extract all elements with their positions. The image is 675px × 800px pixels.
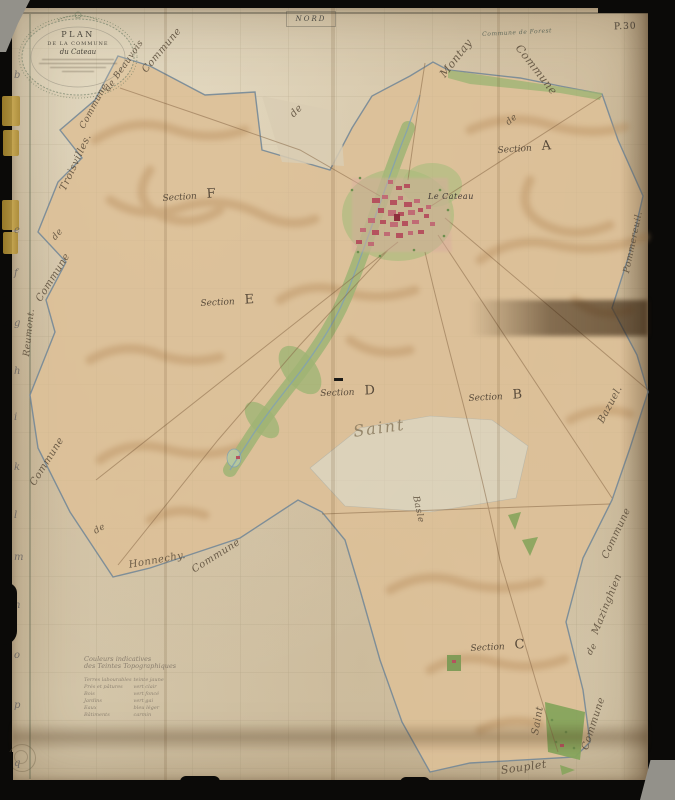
legend-title-2: des Teintes Topographiques (84, 663, 204, 670)
scan-edge-tear (400, 777, 430, 784)
section-letter: D (364, 383, 375, 398)
cartouche-fine-print (39, 63, 117, 64)
legend-row: Eauxbleu léger (84, 704, 166, 711)
legend-row: Boisvert foncé (84, 690, 166, 697)
legend-row: Terres labourablesteinte jaune (84, 676, 166, 683)
grid-row-letter: e (14, 225, 20, 236)
color-legend: Couleurs indicatives des Teintes Topogra… (84, 656, 204, 718)
section-word: Section (470, 642, 505, 654)
legend-row: Bâtimentscarmin (84, 711, 166, 718)
legend-term: Eaux (84, 704, 134, 711)
section-word: Section (162, 192, 197, 204)
tape-repair (2, 96, 20, 126)
map-scan: NORD P.30 PLAN DE LA COMMUNE du Cateau S… (0, 0, 675, 800)
legend-tint: vert clair (134, 683, 166, 690)
legend-row: Jardinsvert gai (84, 697, 166, 704)
north-label: NORD (286, 11, 336, 27)
section-letter: E (244, 292, 254, 307)
section-word: Section (200, 297, 235, 309)
grid-row-letter: h (14, 366, 20, 377)
section-b-label: SectionB (468, 387, 523, 405)
scan-edge-tear (180, 776, 220, 784)
section-word: Section (497, 144, 532, 156)
legend-term: Jardins (84, 697, 134, 704)
legend-tint: bleu léger (134, 704, 166, 711)
section-letter: C (514, 637, 525, 653)
tape-repair (3, 130, 19, 156)
cartouche-subtitle: DE LA COMMUNE (28, 41, 128, 47)
cartouche-fine-print (50, 67, 106, 68)
grid-row-letter: i (14, 412, 17, 423)
scan-edge-tear (598, 0, 675, 13)
cartouche-fine-print (42, 59, 114, 60)
grid-row-letter: o (14, 650, 20, 661)
grid-row-letter: g (14, 318, 20, 329)
scan-edge-tear (0, 752, 13, 800)
cartouche-fine-print (62, 71, 94, 72)
village-name: Le Cateau (428, 192, 474, 201)
grid-row-letter: l (14, 510, 17, 521)
cartouche-commune-name: du Cateau (28, 48, 128, 56)
section-d-label: SectionD (320, 383, 375, 400)
grid-row-letter: m (14, 552, 23, 563)
section-letter: A (541, 138, 551, 154)
scan-edge-tear (0, 296, 11, 326)
section-word: Section (320, 388, 355, 399)
legend-tint: carmin (134, 711, 166, 718)
legend-term: Bâtiments (84, 711, 134, 718)
section-letter: B (512, 387, 522, 402)
plate-number-stamp: P.30 (614, 22, 637, 33)
legend-term: Terres labourables (84, 676, 134, 683)
legend-tint: vert gai (134, 697, 166, 704)
cartouche: PLAN DE LA COMMUNE du Cateau (28, 30, 128, 72)
section-c-label: SectionC (470, 637, 525, 655)
grid-row-letter: k (14, 462, 20, 473)
grid-row-letter: b (14, 70, 20, 81)
section-word: Section (468, 392, 503, 404)
grid-row-letter: f (14, 268, 18, 279)
legend-tint: vert foncé (134, 690, 166, 697)
section-e-label: SectionE (200, 292, 254, 310)
legend-term: Prés et pâtures (84, 683, 134, 690)
legend-table: Terres labourablesteinte jaune Prés et p… (84, 676, 166, 718)
legend-row: Prés et pâturesvert clair (84, 683, 166, 690)
cartouche-title: PLAN (28, 30, 128, 39)
section-d-mark (334, 378, 343, 381)
legend-tint: teinte jaune (134, 676, 166, 683)
scan-edge-tear (0, 583, 17, 645)
legend-term: Bois (84, 690, 134, 697)
grid-row-letter: p (14, 700, 20, 711)
section-letter: F (206, 186, 216, 202)
